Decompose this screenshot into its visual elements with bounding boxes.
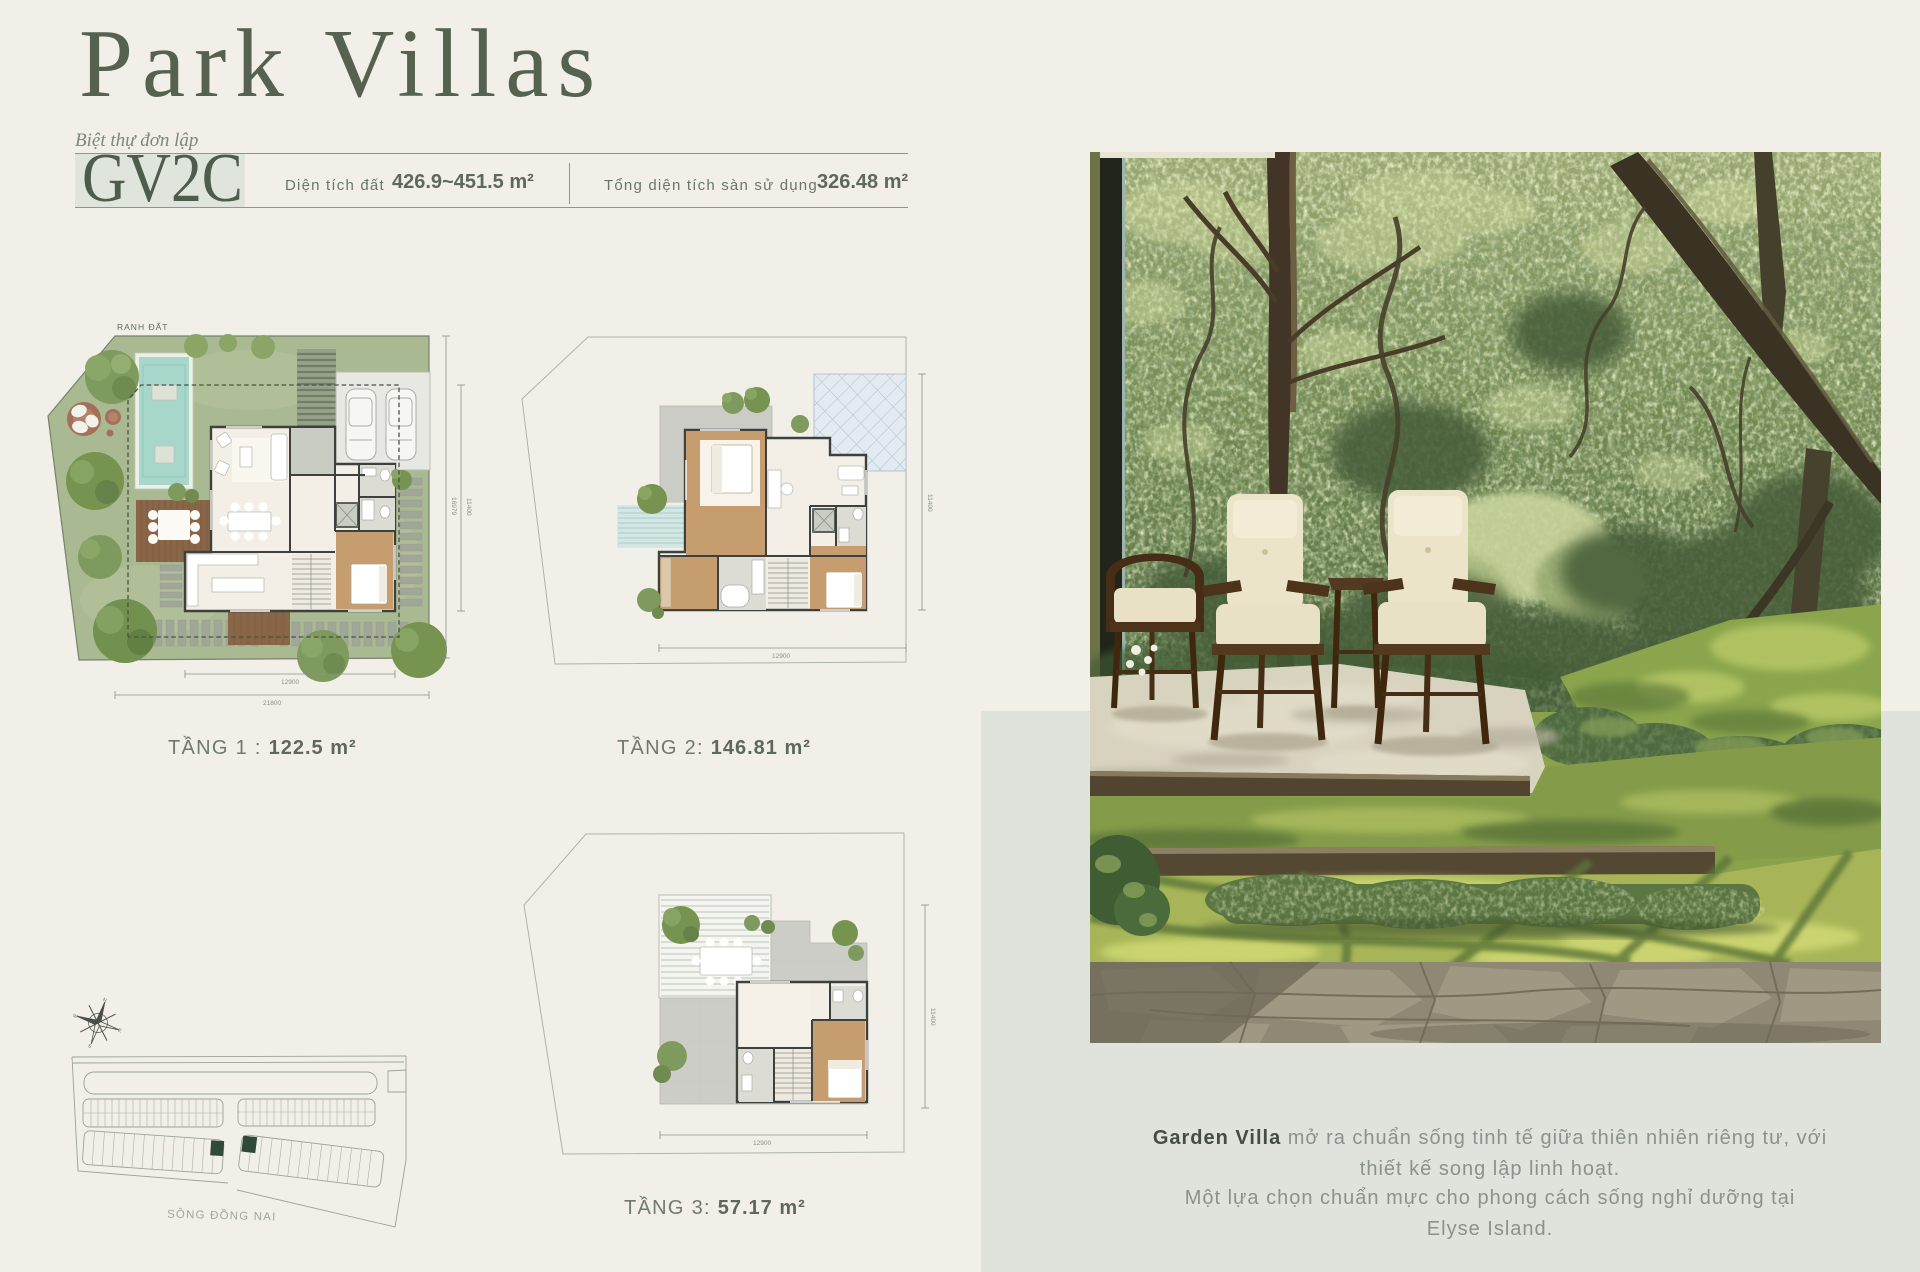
svg-text:RANH ĐẤT: RANH ĐẤT <box>117 322 168 332</box>
svg-text:11400: 11400 <box>929 1008 936 1026</box>
svg-text:12900: 12900 <box>281 679 299 686</box>
svg-text:21800: 21800 <box>263 700 281 707</box>
svg-text:12900: 12900 <box>753 1140 771 1147</box>
svg-text:12900: 12900 <box>772 653 790 660</box>
svg-text:11400: 11400 <box>465 498 472 516</box>
svg-text:11400: 11400 <box>926 494 933 512</box>
svg-text:N: N <box>102 997 108 1004</box>
svg-text:E: E <box>117 1028 123 1035</box>
svg-text:W: W <box>72 1013 79 1020</box>
svg-text:16979: 16979 <box>450 497 457 515</box>
